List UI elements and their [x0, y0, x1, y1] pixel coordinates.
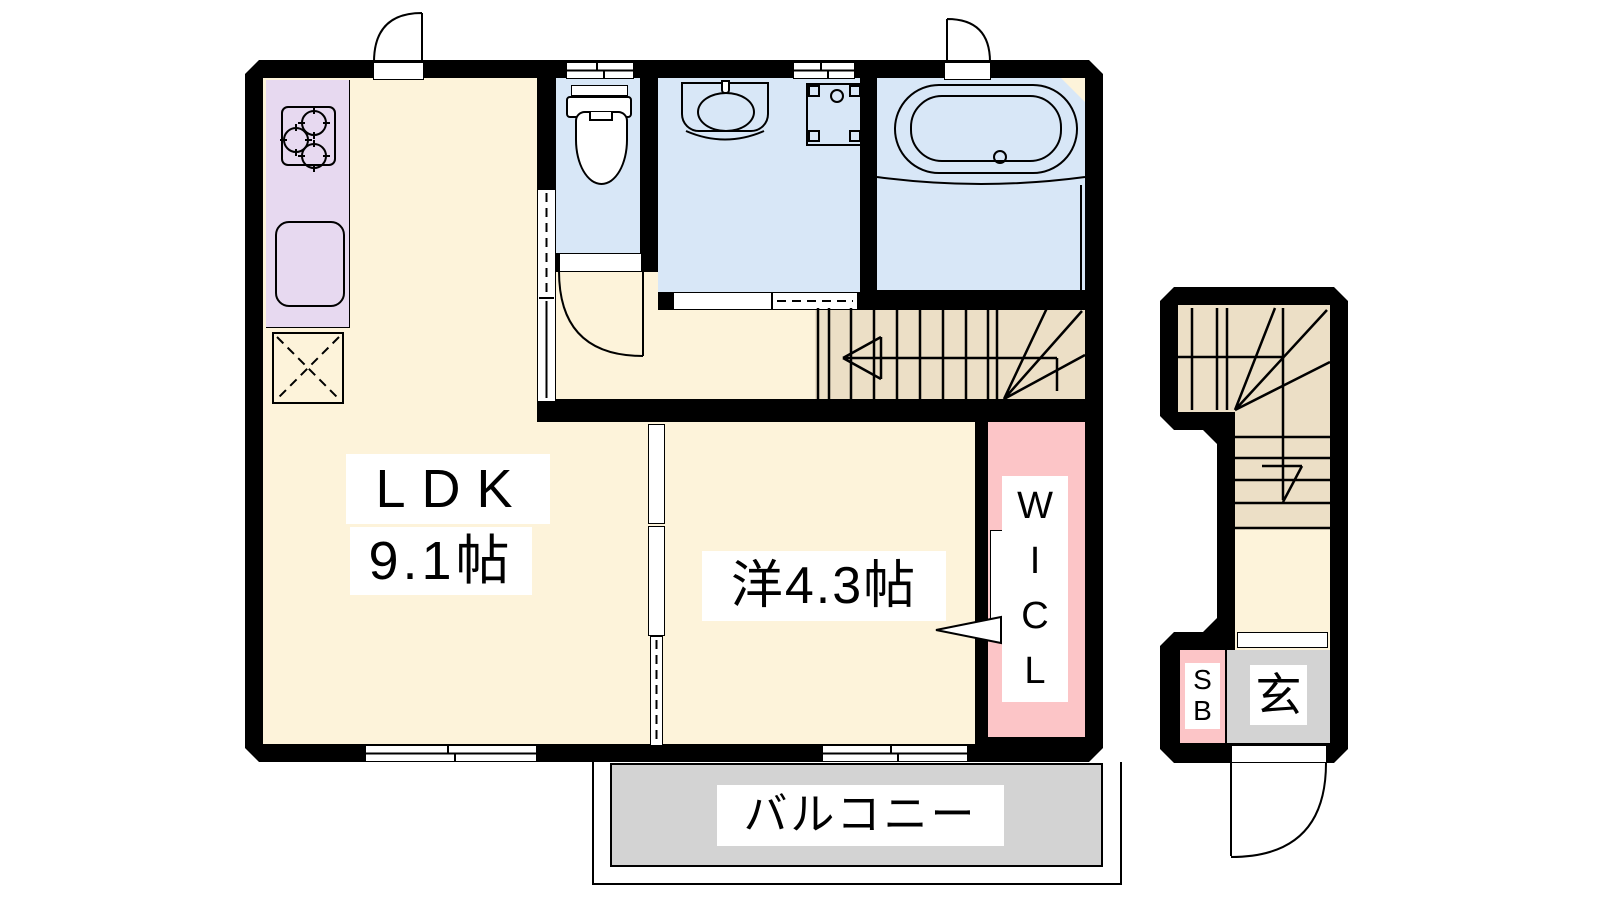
wall-bedroom-wicl	[975, 422, 988, 744]
shoe-box-char: S	[1193, 665, 1212, 696]
bath-top-door-swing	[947, 19, 990, 62]
wicl-char: L	[1024, 644, 1045, 699]
wall-hall-bedroom	[537, 399, 1085, 422]
sliding-partition-ldk-hall	[537, 190, 556, 401]
toilet-doorway	[559, 253, 642, 272]
washer-corner-bl	[808, 130, 820, 142]
main-staircase	[815, 308, 1085, 399]
wicl-char: C	[1021, 589, 1048, 644]
bedroom-sliding-door-panel-1	[648, 424, 665, 524]
wall-toilet-washroom	[640, 60, 658, 272]
wicl-char: W	[1017, 479, 1053, 534]
ldk-top-doorway	[373, 62, 424, 80]
ldk-label-text: LDK	[375, 461, 528, 518]
bathtub-inner	[910, 95, 1062, 162]
entrance-staircase-upper	[1178, 305, 1330, 412]
wicl-label: W I C L	[1002, 476, 1068, 702]
wall-bath-stairs	[877, 290, 1085, 310]
window-bedroom-south	[822, 745, 968, 762]
kitchen-sink-icon	[275, 221, 345, 307]
washer-drain-icon	[830, 89, 844, 103]
refrigerator-space-icon	[272, 332, 344, 404]
gas-stove-icon	[281, 106, 336, 166]
toilet-cistern-plate	[571, 85, 628, 96]
balcony-text: バルコニー	[743, 792, 977, 838]
bedroom-sliding-door-panel-2	[648, 526, 665, 636]
entrance-step	[1237, 632, 1328, 648]
entrance-staircase-lower	[1235, 412, 1330, 528]
ldk-size-text: 9.1帖	[368, 533, 513, 590]
entrance-label: 玄	[1250, 665, 1307, 725]
floor-plan-canvas: LDK 9.1帖 洋4.3帖 W I C L バルコニー S B 玄	[0, 0, 1600, 900]
ldk-room-label: LDK	[346, 454, 550, 524]
shoe-box-label: S B	[1185, 663, 1220, 729]
bath-top-doorway	[944, 62, 991, 80]
entrance-door-swing	[1231, 763, 1326, 857]
toilet-tank-notch	[589, 112, 613, 121]
wash-basin-bowl-icon	[697, 92, 755, 132]
wall-wicl-bottom	[975, 737, 1085, 744]
western-room-text: 洋4.3帖	[731, 559, 917, 614]
washer-corner-tr	[849, 85, 861, 97]
washer-corner-tl	[808, 85, 820, 97]
entrance-text: 玄	[1256, 671, 1302, 719]
window-washroom	[793, 62, 855, 79]
entrance-doorway	[1231, 745, 1327, 763]
washroom-sliding-door-panel	[673, 292, 772, 310]
ldk-top-door-swing	[374, 13, 422, 62]
wicl-char: I	[1030, 534, 1041, 589]
washer-corner-br	[849, 130, 861, 142]
bathtub-drain-icon	[993, 150, 1007, 164]
ldk-size-label: 9.1帖	[350, 527, 532, 595]
window-toilet	[566, 62, 634, 79]
balcony-label: バルコニー	[717, 785, 1004, 846]
bedroom-sliding-door-track	[650, 636, 663, 746]
window-ldk-south	[365, 745, 537, 762]
washroom-sliding-door-track	[772, 292, 858, 310]
shoe-box-char: B	[1193, 696, 1212, 727]
western-room-label: 洋4.3帖	[702, 551, 946, 621]
wash-basin-tap-icon	[721, 80, 730, 94]
wall-ldk-toilet	[537, 60, 556, 190]
